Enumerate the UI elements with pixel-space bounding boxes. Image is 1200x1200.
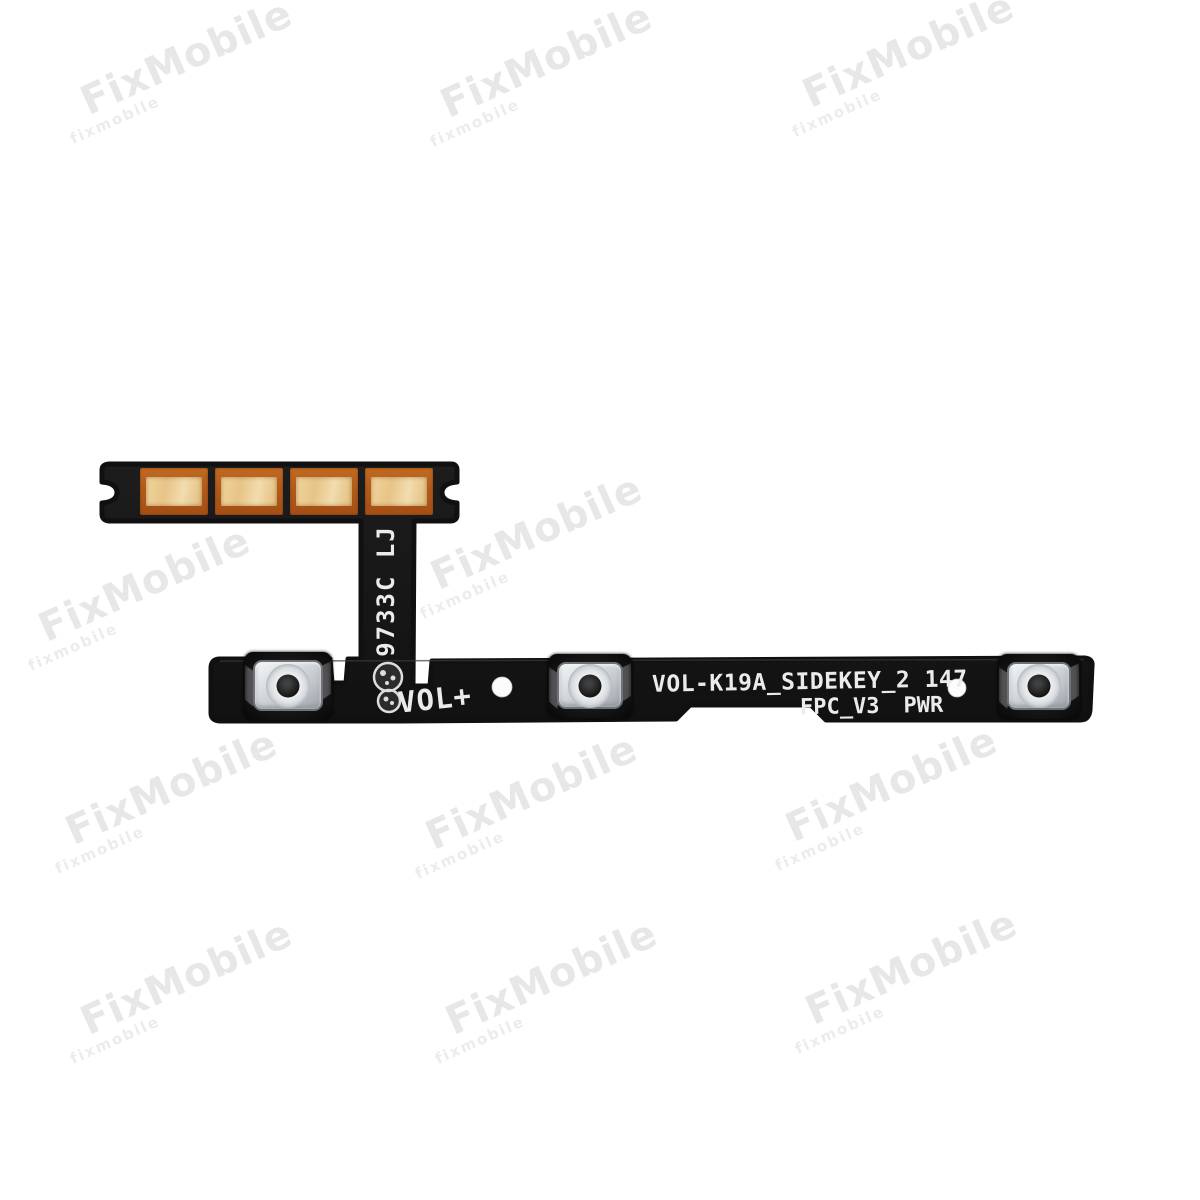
product-photo: 9733C LJ VOL+ VOL-K19A_SIDEKEY_2 147 FPC… (0, 0, 1200, 1200)
gold-contact-surface (221, 477, 277, 506)
dome-center-dot (277, 674, 300, 697)
dome-ring (266, 664, 310, 708)
gold-contact-pad-4 (365, 468, 433, 515)
dome-center-dot (1028, 675, 1051, 698)
power-label: PWR (903, 693, 943, 719)
tactile-switch-volume-down (548, 654, 632, 718)
dome-center-dot (579, 674, 602, 697)
batch-code-vertical-label: 9733C LJ (358, 518, 414, 664)
metal-dome-plate (253, 660, 323, 711)
gold-contact-pad-3 (290, 468, 358, 515)
metal-dome-plate (557, 662, 623, 709)
gold-contact-surface (146, 477, 202, 506)
tactile-switch-power (998, 654, 1080, 719)
gold-contact-surface (296, 477, 352, 506)
gold-contact-pad-1 (140, 468, 208, 515)
batch-code-text: 9733C LJ (372, 525, 400, 657)
gold-contact-surface (371, 477, 427, 506)
fpc-version-row: FPC_V3 PWR (800, 693, 944, 720)
tactile-switch-volume-up (244, 652, 332, 720)
fpc-version-label: FPC_V3 (800, 694, 880, 720)
flex-cable-silhouette (0, 0, 1200, 1200)
dome-ring (568, 664, 612, 708)
gold-contact-pad-2 (215, 468, 283, 515)
dome-ring (1017, 664, 1061, 708)
metal-dome-plate (1007, 662, 1071, 710)
alignment-hole-1 (492, 677, 512, 697)
